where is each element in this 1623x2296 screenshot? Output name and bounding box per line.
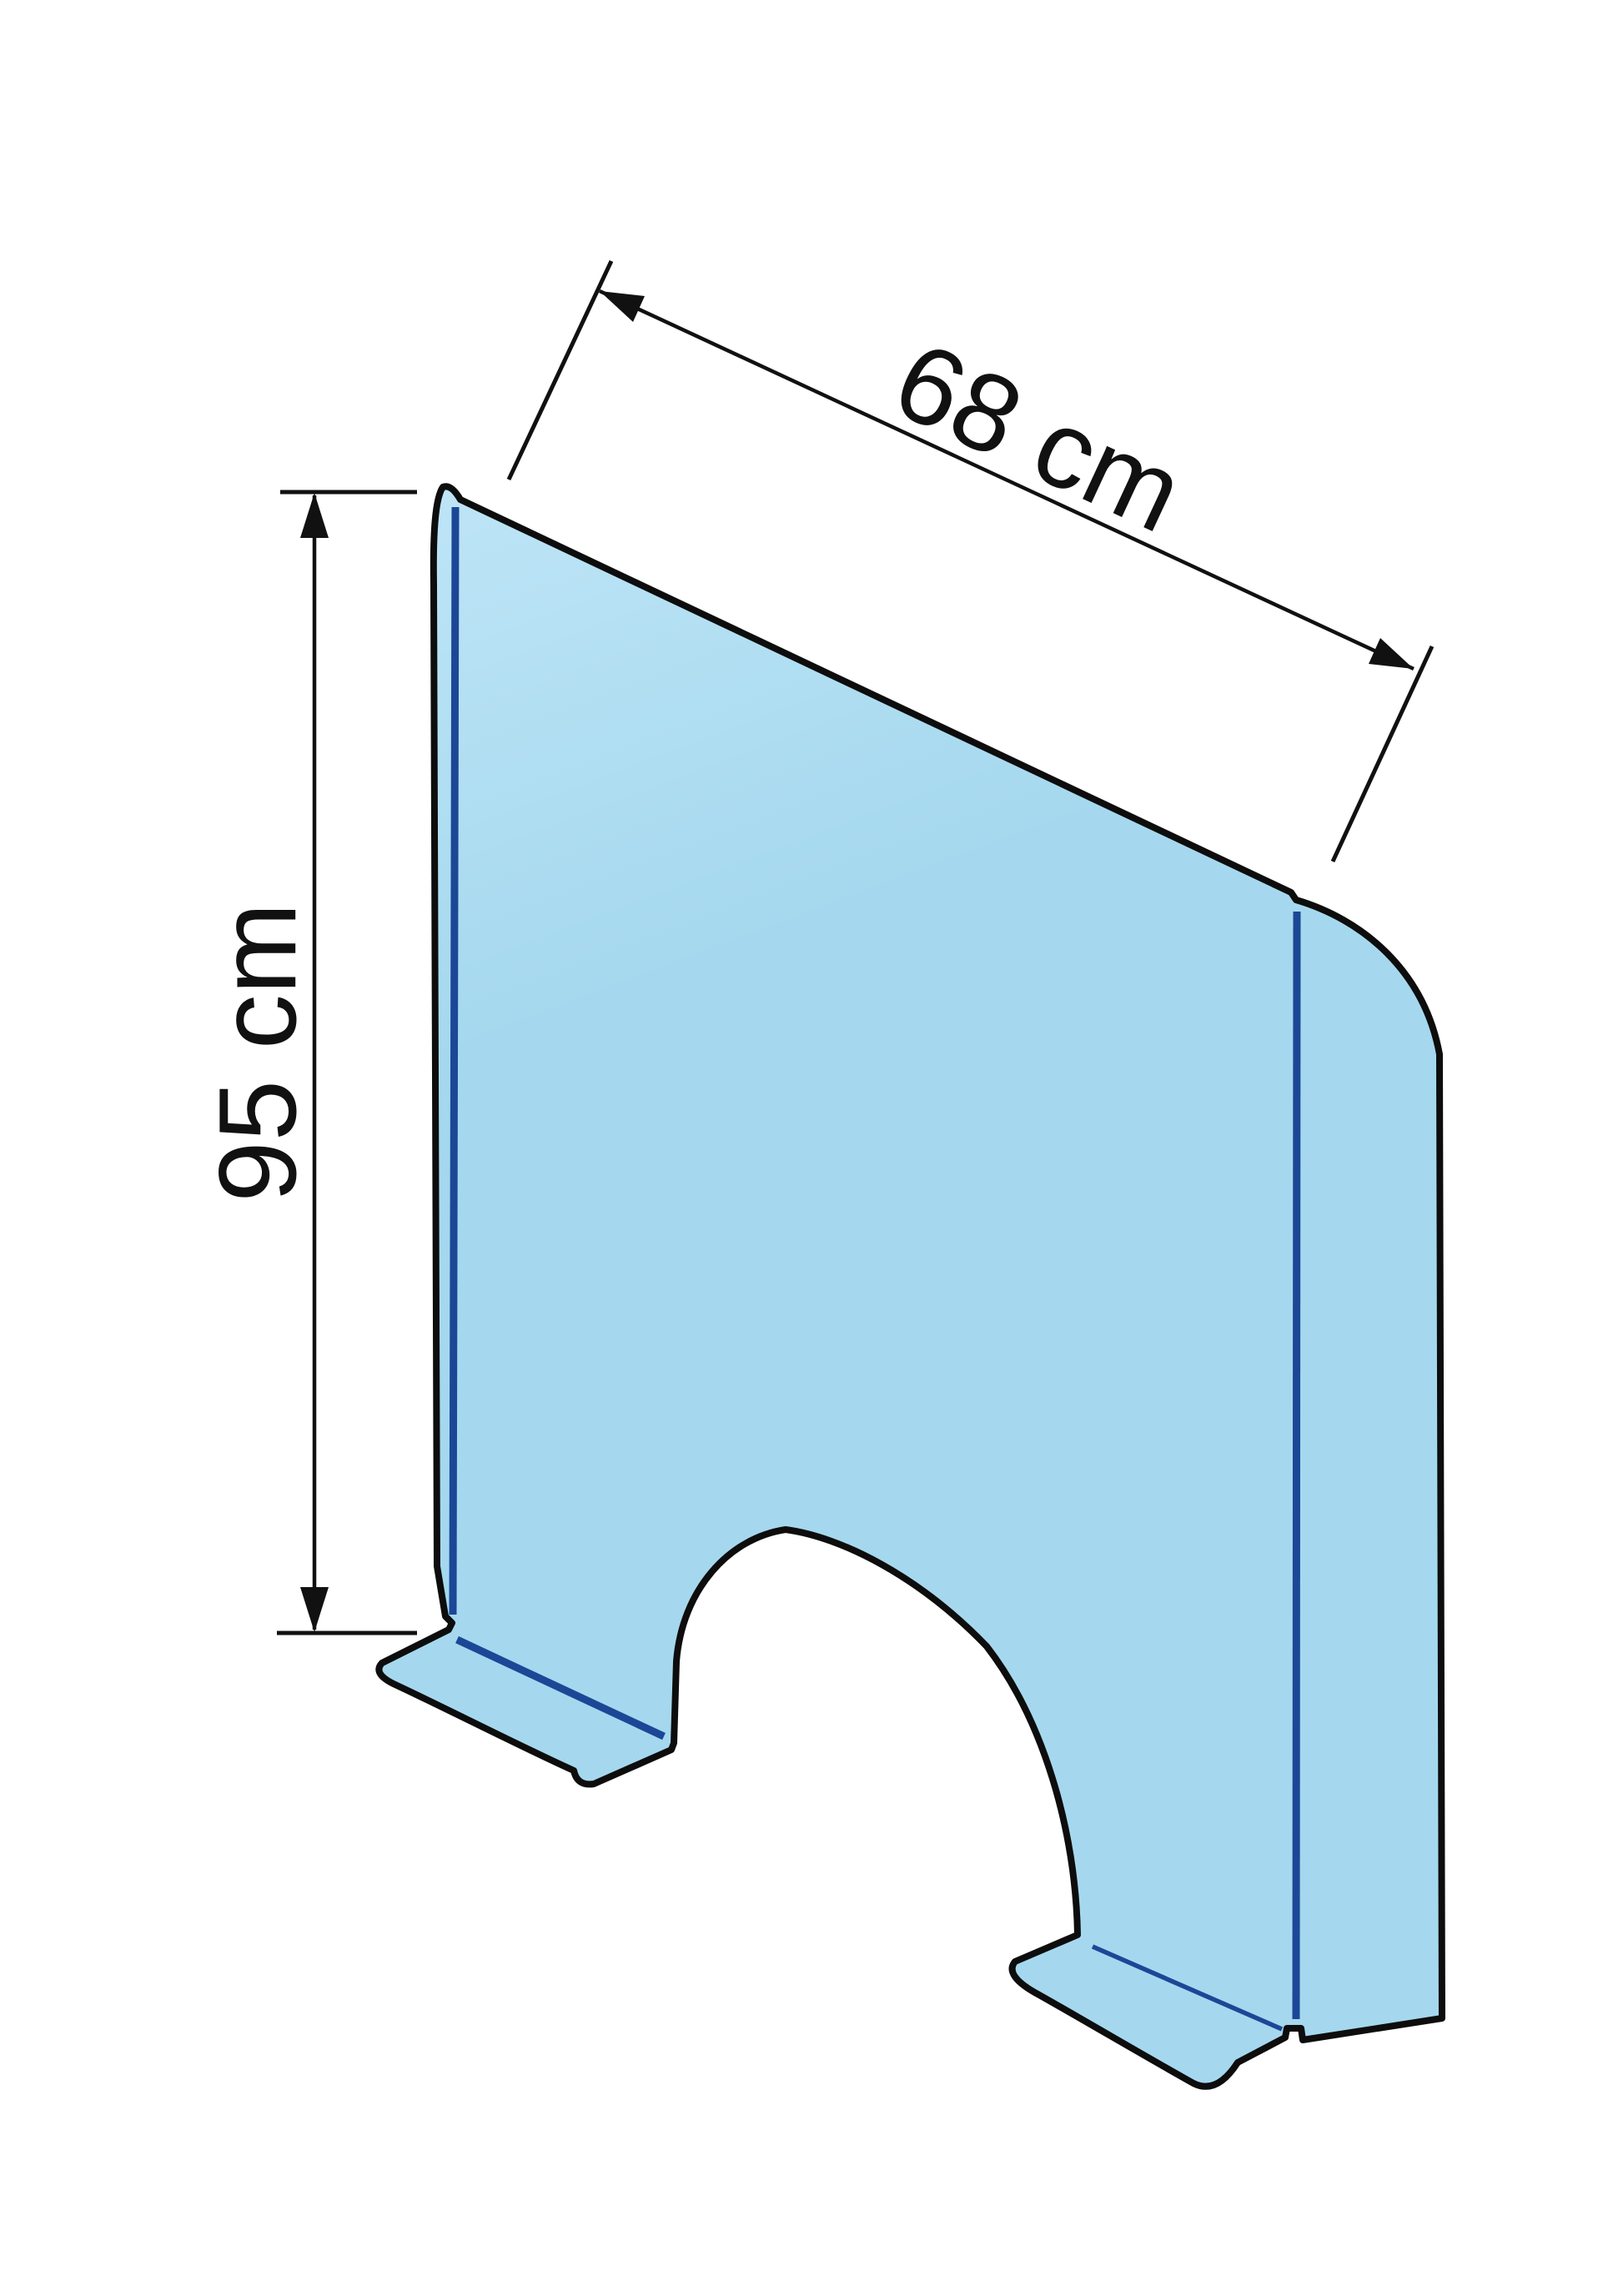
height-arrowhead-top-icon <box>300 493 329 538</box>
height-arrowhead-bottom-icon <box>300 1587 329 1632</box>
width-arrowhead-left-icon <box>600 291 645 322</box>
diagram-page: 95 cm 68 cm <box>0 0 1623 2296</box>
height-dimension: 95 cm <box>196 492 417 1633</box>
height-dimension-label: 95 cm <box>196 902 319 1202</box>
width-extension-line-left <box>509 261 611 480</box>
width-extension-line-right <box>1333 646 1432 862</box>
screen-panel-outline <box>379 486 1442 2086</box>
dimension-diagram-canvas: 95 cm 68 cm <box>0 0 1623 2296</box>
left-side-fold-line <box>453 507 455 1615</box>
width-dimension-label: 68 cm <box>877 318 1201 555</box>
width-arrowhead-right-icon <box>1369 638 1414 669</box>
right-side-fold-line <box>1296 912 1297 2019</box>
